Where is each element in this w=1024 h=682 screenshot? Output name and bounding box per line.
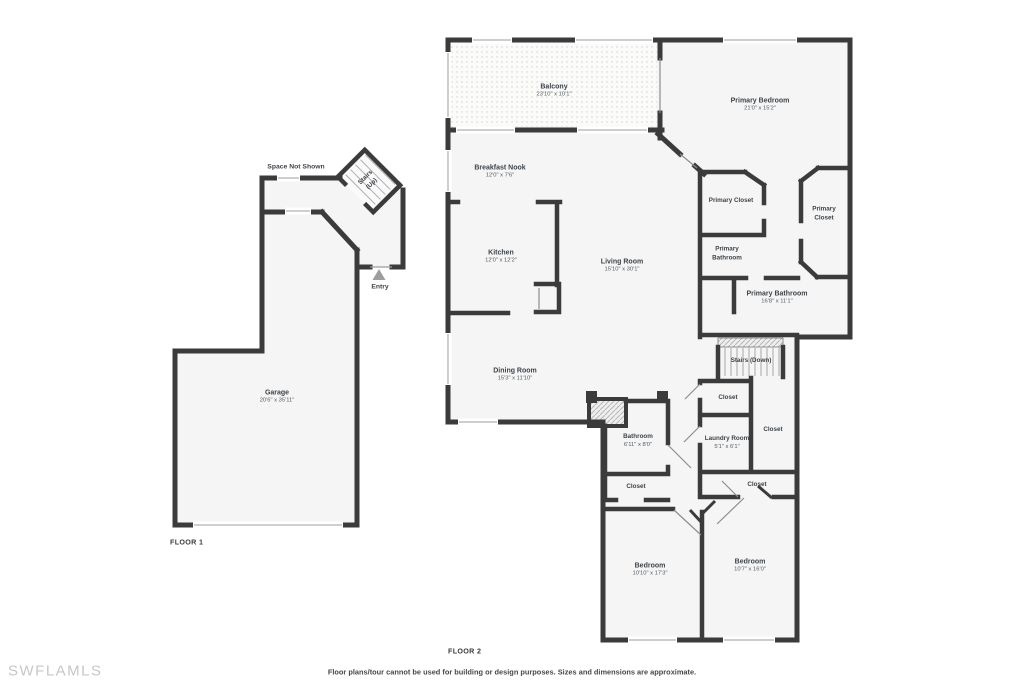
room-label-bedroom-right: Bedroom 10'7" x 16'0" xyxy=(734,557,766,574)
watermark-logo: SWFLAMLS xyxy=(8,663,103,680)
room-label-living-room: Living Room 15'10" x 30'1" xyxy=(601,257,643,274)
entry-arrow xyxy=(373,269,386,280)
room-label-laundry-room: Laundry Room 5'1" x 6'1" xyxy=(704,435,750,451)
room-label-closet-hall-bottom: Closet xyxy=(747,481,766,490)
space-not-shown-label: Space Not Shown xyxy=(267,164,324,171)
room-label-breakfast-nook: Breakfast Nook 12'0" x 7'6" xyxy=(474,163,525,180)
floor2-plan xyxy=(445,37,851,644)
room-label-primary-closet-right: Primary Closet xyxy=(805,206,843,223)
wall-post-left xyxy=(586,391,597,403)
room-label-closet-hall-right: Closet xyxy=(763,426,782,435)
room-label-closet-hall-top: Closet xyxy=(718,394,737,403)
floorplan-svg xyxy=(0,0,1024,682)
room-label-dining-room: Dining Room 15'3" x 11'10" xyxy=(493,366,537,383)
disclaimer-text: Floor plans/tour cannot be used for buil… xyxy=(0,668,1024,677)
room-label-primary-bedroom: Primary Bedroom 21'0" x 15'2" xyxy=(731,96,790,113)
floorplan-page: Space Not Shown Stairs (Up) Entry Garage… xyxy=(0,0,1024,682)
room-label-bedroom-left: Bedroom 10'10" x 17'3" xyxy=(632,561,667,578)
wall-post-right xyxy=(657,391,668,403)
room-label-primary-bathroom: Primary Bathroom 16'8" x 11'1" xyxy=(746,289,807,306)
entry-label: Entry xyxy=(371,284,388,291)
room-label-primary-bathroom-small: Primary Bathroom xyxy=(702,246,752,263)
room-label-bathroom: Bathroom 6'11" x 8'0" xyxy=(623,433,653,449)
floor1-title: FLOOR 1 xyxy=(170,538,203,547)
room-label-primary-closet-left: Primary Closet xyxy=(709,197,753,206)
room-label-balcony: Balcony 23'10" x 10'1" xyxy=(536,82,571,99)
floor2-title: FLOOR 2 xyxy=(448,647,481,656)
room-label-garage: Garage 20'6" x 35'11" xyxy=(260,388,295,405)
room-label-stairs-down: Stairs (Down) xyxy=(731,357,772,366)
floor1-plan xyxy=(175,150,403,529)
room-label-kitchen: Kitchen 12'0" x 12'2" xyxy=(485,248,517,265)
room-label-closet-bathroom: Closet xyxy=(626,483,645,492)
stairs-down-hatch xyxy=(718,338,783,347)
